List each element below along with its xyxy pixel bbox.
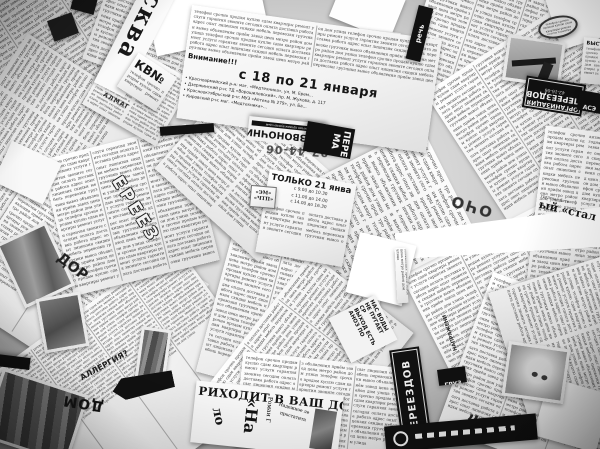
ring-logo-icon — [393, 431, 409, 447]
nostril-shape — [531, 371, 538, 377]
ema-text: «ЧТП» — [254, 195, 272, 203]
na-vertical-text: «На — [240, 397, 263, 434]
newspaper-collage-photo: телефон срочно продам куплю сдам квартир… — [0, 0, 600, 449]
face-photo — [501, 341, 570, 404]
ase-black-chip: АСЭ ГР — [576, 90, 600, 114]
oval-stamp-text: телефон срочно продам куплю сдам квартир… — [542, 18, 574, 36]
white-dash-marks — [415, 425, 515, 439]
newsprint-columns: телефон срочно продам куплю сдам квартир… — [584, 46, 600, 77]
tolko-ad-scrap: ТОЛЬКО 21 янва с 9.00 до 10.30 с 11.00 д… — [255, 169, 356, 267]
nostril-shape — [541, 375, 548, 381]
small-photo-chip — [309, 408, 337, 449]
dark-figure-photo — [36, 292, 90, 354]
roman-vertical-text: Роман Г — [264, 396, 274, 422]
dom-letters-text: ДОМ — [62, 392, 105, 414]
lo-vertical-text: ло — [209, 406, 227, 427]
bystro-list-scrap: БЫСТРО телефон срочно продам куплю сдам … — [580, 37, 600, 85]
ema-box-scrap: «ЭМ» «ЧТП» — [249, 185, 277, 209]
